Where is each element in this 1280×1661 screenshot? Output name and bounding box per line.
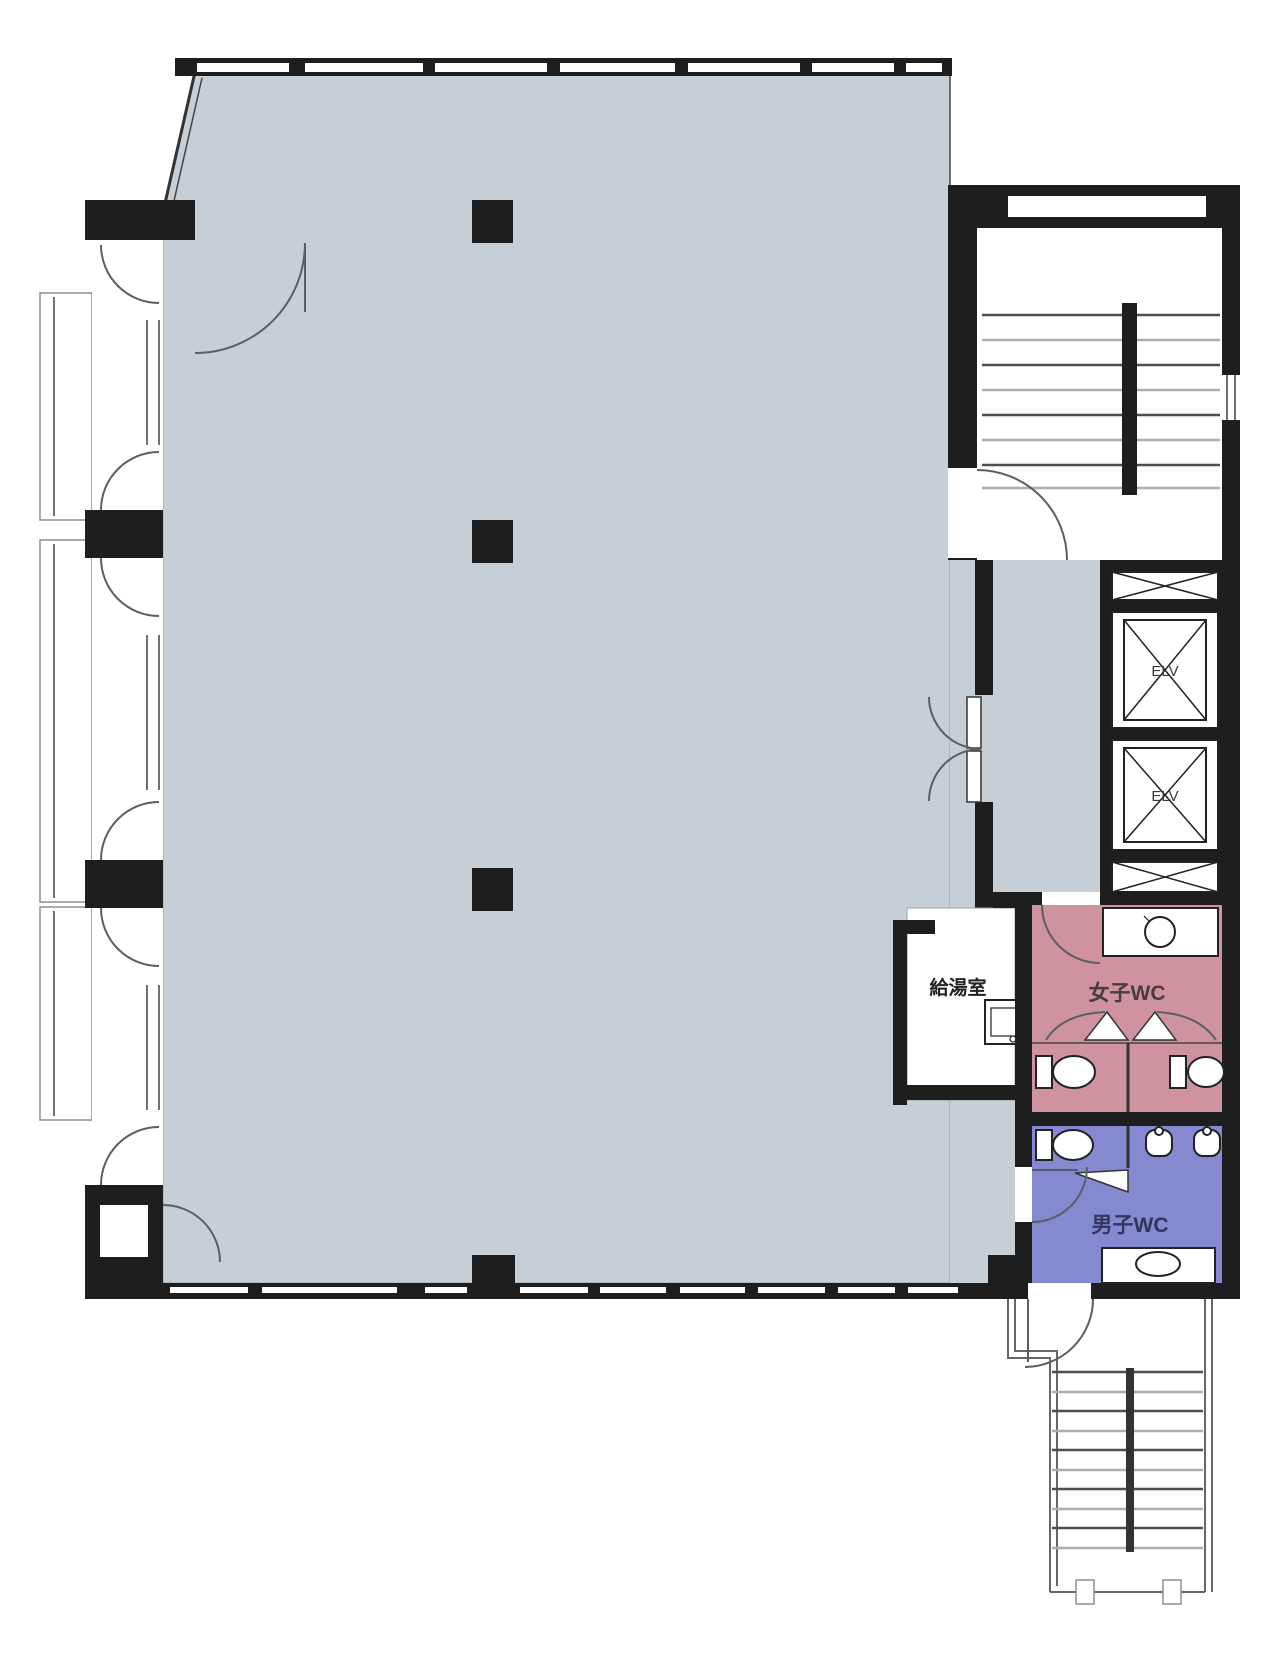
wall-segment	[1100, 560, 1232, 572]
window-segment	[560, 63, 675, 72]
window-segment	[197, 63, 289, 72]
door-swing-icon	[977, 470, 1067, 560]
column	[472, 868, 513, 911]
toilet-tank	[1036, 1130, 1052, 1160]
urinal-flush	[1155, 1127, 1163, 1135]
office-floor	[163, 72, 950, 1283]
mens-toilet-label: 男子WC	[1092, 1214, 1169, 1237]
south-stairwell	[1008, 1299, 1212, 1604]
window-segment	[906, 63, 942, 72]
wall-segment	[1218, 560, 1232, 905]
mens-toilet: 男子WC	[1032, 1126, 1222, 1283]
elevator-1: ELV	[1112, 612, 1218, 728]
alcove	[92, 240, 163, 510]
window-segment	[838, 1287, 895, 1293]
window-segment	[812, 63, 894, 72]
window-segment	[425, 1287, 467, 1293]
toilet-icon	[1170, 1056, 1224, 1088]
wall-segment	[1015, 892, 1032, 1167]
window-segment	[680, 1287, 745, 1293]
column	[85, 510, 163, 558]
column	[85, 860, 163, 908]
window-segment	[688, 63, 800, 72]
column	[472, 520, 513, 563]
wall-segment	[893, 1085, 1015, 1100]
floor-plan-drawing: ELV ELV 給湯室 女子WC	[0, 0, 1280, 1661]
floor-plan: ELV ELV 給湯室 女子WC	[0, 0, 1280, 1661]
wall-segment	[893, 920, 907, 1105]
alcove	[92, 558, 163, 860]
toilet-tank	[1170, 1056, 1186, 1088]
window-segment	[520, 1287, 588, 1293]
window-segment	[305, 63, 423, 72]
column	[472, 200, 513, 243]
urinal-icon	[1146, 1127, 1172, 1156]
balcony-slab	[40, 907, 92, 1120]
wall-segment	[1112, 850, 1218, 862]
door-opening	[948, 468, 977, 558]
window-segment	[170, 1287, 248, 1293]
stair-divider	[1122, 303, 1137, 495]
womens-toilet: 女子WC	[1032, 905, 1224, 1112]
door-swing-icon	[1025, 1299, 1093, 1367]
toilet-bowl	[1188, 1057, 1224, 1087]
wall-segment	[1032, 1112, 1222, 1126]
window-segment	[435, 63, 547, 72]
wall-segment	[1100, 892, 1232, 905]
balcony-slab	[40, 293, 92, 520]
urinal-icon	[1194, 1127, 1220, 1156]
basin-icon	[1136, 1252, 1180, 1276]
kitchenette: 給湯室	[893, 908, 1025, 1105]
balcony-slab	[40, 540, 92, 902]
wall-segment	[1112, 600, 1218, 612]
door-leaf	[967, 751, 981, 802]
wall-segment	[1100, 560, 1112, 905]
womens-toilet-label: 女子WC	[1089, 981, 1166, 1005]
elevator-block: ELV ELV	[1100, 560, 1232, 905]
window-segment	[908, 1287, 958, 1293]
toilet-bowl	[1053, 1056, 1095, 1088]
stair-divider	[1126, 1368, 1134, 1552]
window-segment	[262, 1287, 397, 1293]
wall-segment	[1112, 728, 1218, 740]
window-segment	[1008, 196, 1206, 217]
door-leaf	[967, 697, 981, 748]
window-segment	[600, 1287, 666, 1293]
elevator-2: ELV	[1112, 740, 1218, 850]
elevator-label: ELV	[1151, 788, 1178, 805]
south-stair-door-opening	[1028, 1283, 1091, 1299]
toilet-icon	[1036, 1130, 1093, 1160]
stair-newel	[1076, 1580, 1094, 1604]
toilet-bowl	[1053, 1130, 1093, 1160]
wall-segment	[1015, 1222, 1032, 1283]
corner-niche	[100, 1205, 148, 1257]
alcove	[92, 908, 163, 1185]
toilet-icon	[1036, 1056, 1095, 1088]
urinal-flush	[1203, 1127, 1211, 1135]
toilet-tank	[1036, 1056, 1052, 1088]
kitchenette-label: 給湯室	[929, 976, 986, 999]
column	[472, 1255, 515, 1297]
window-segment	[1222, 375, 1240, 420]
wall-segment	[85, 200, 195, 240]
north-stairwell	[948, 185, 1240, 560]
stair-newel	[1163, 1580, 1181, 1604]
window-segment	[758, 1287, 825, 1293]
elevator-label: ELV	[1151, 663, 1178, 680]
north-wall	[175, 58, 952, 76]
